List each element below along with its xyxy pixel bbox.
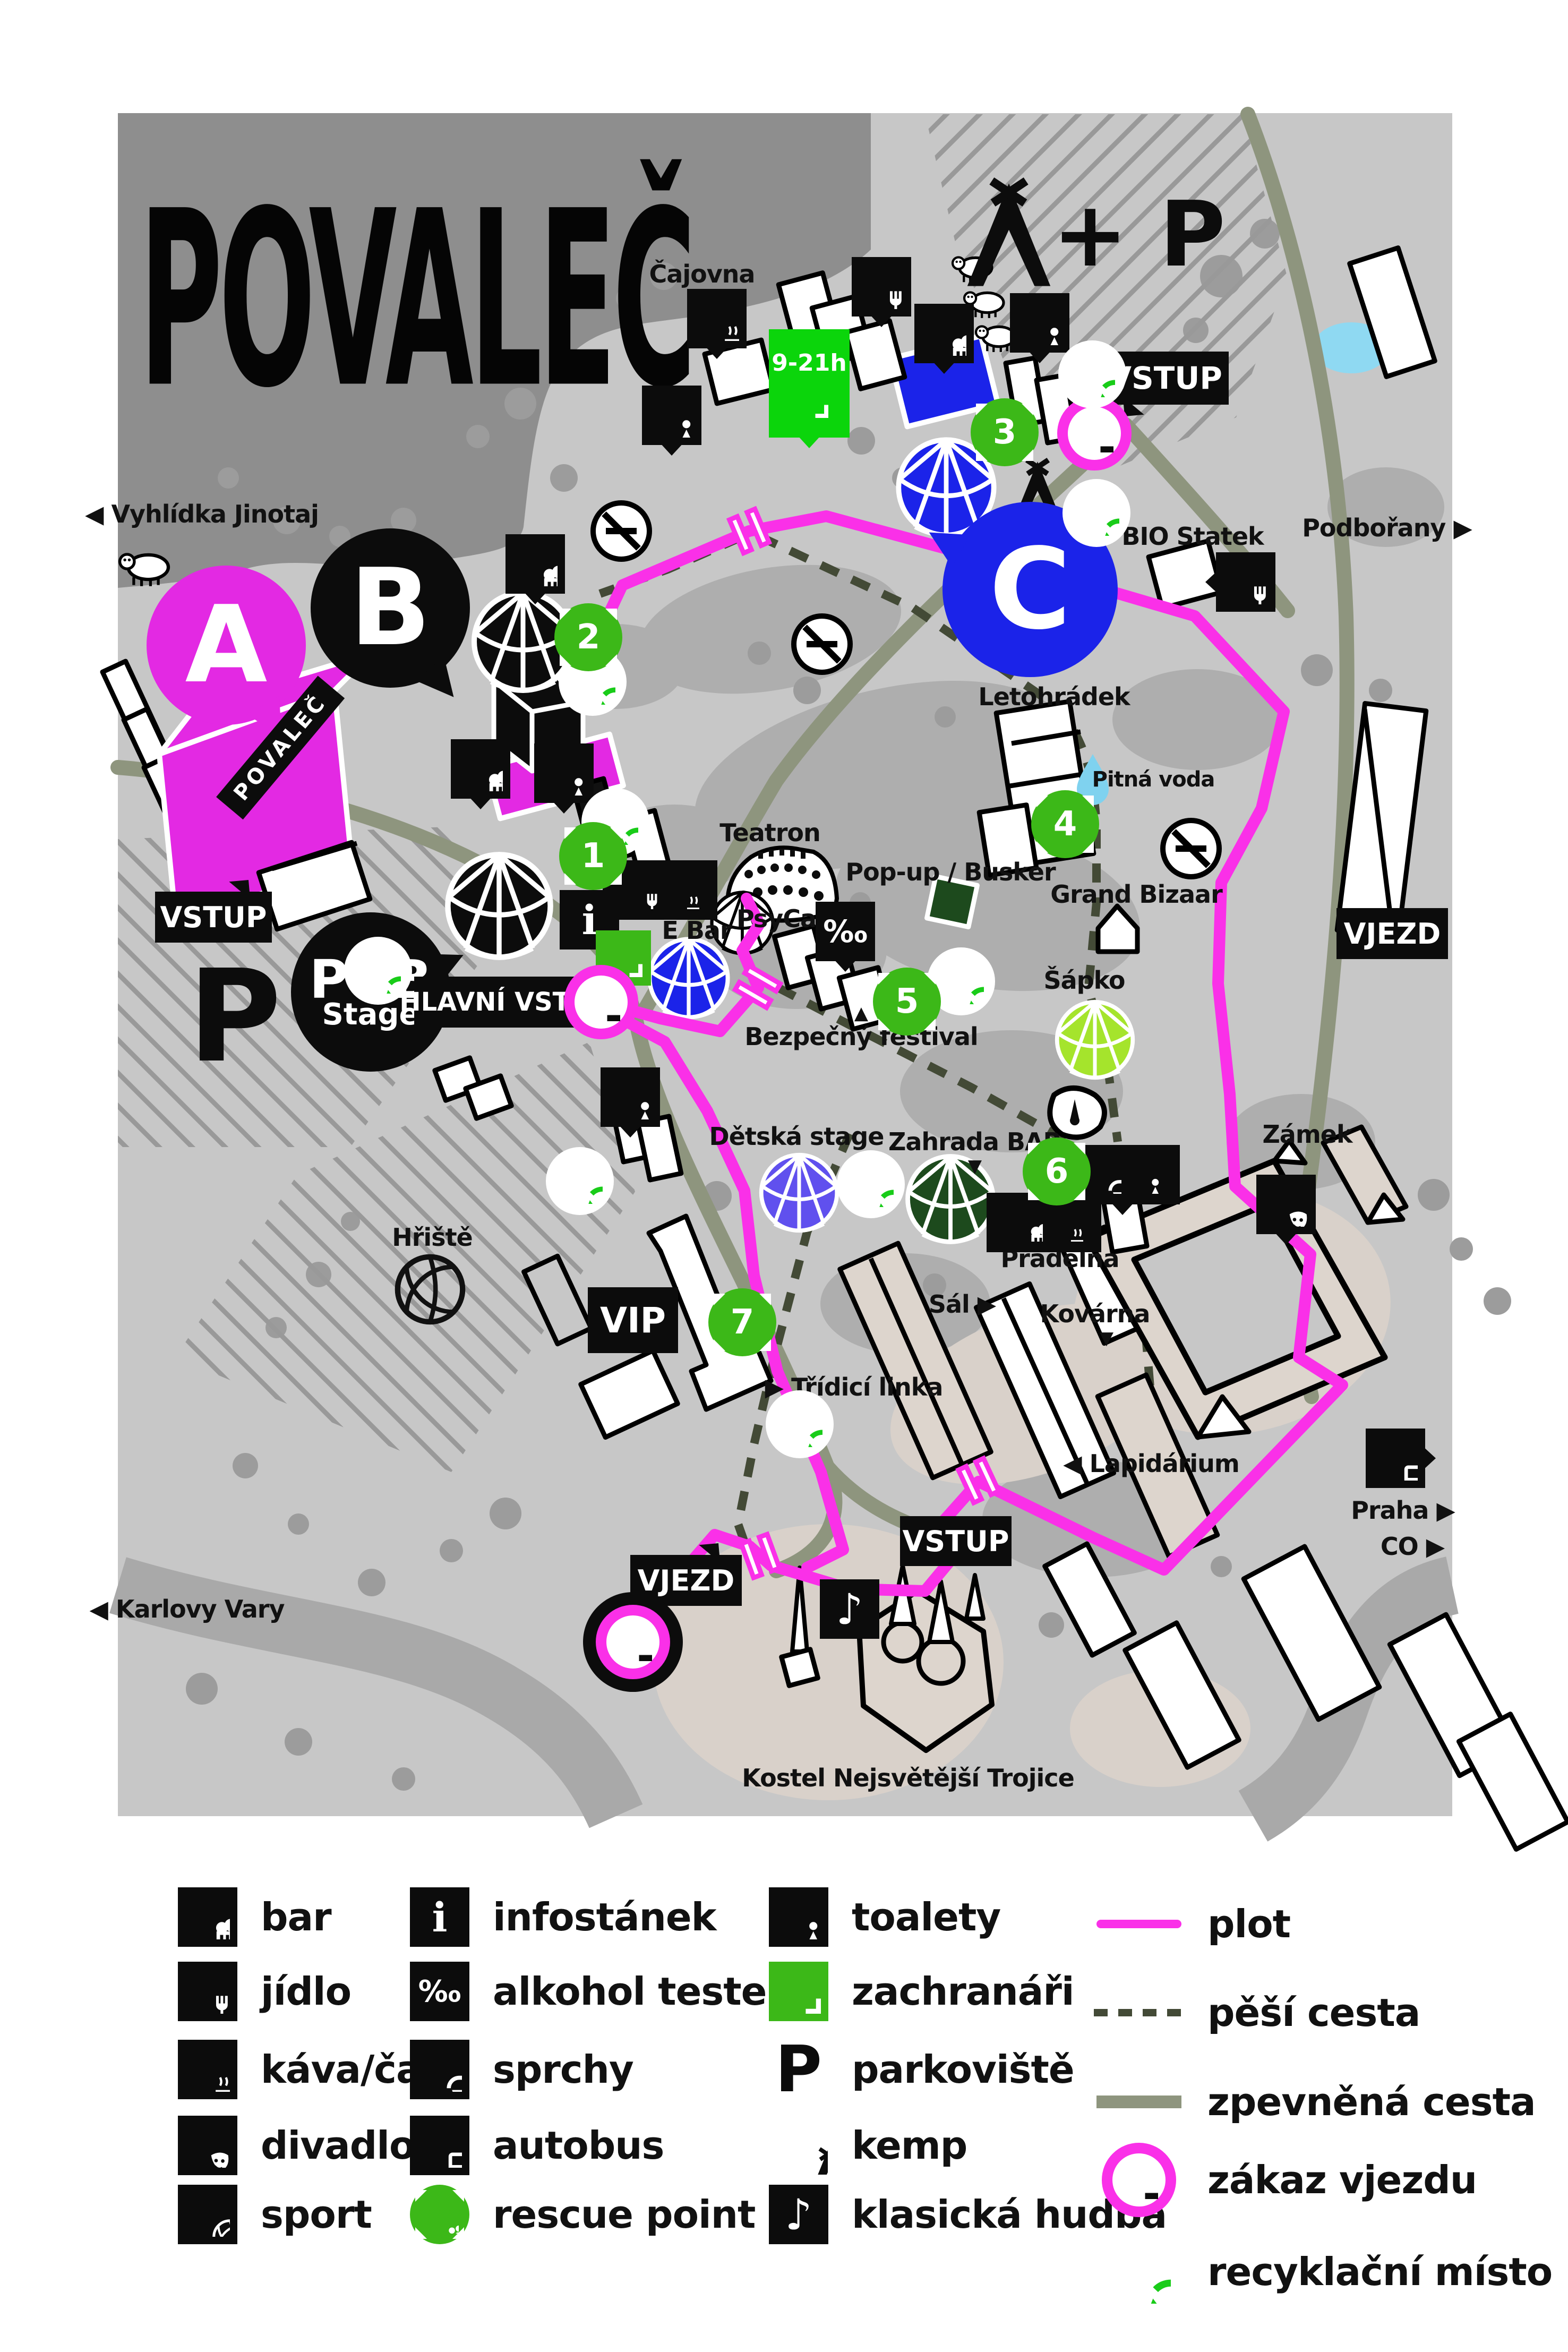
label-sapko: Šápko	[1043, 966, 1125, 995]
music-note-icon: ♪	[836, 1585, 863, 1634]
label-zamek: Zámek	[1262, 1120, 1352, 1149]
recycle-icon	[777, 1401, 822, 1447]
legend-item-sport: sport	[178, 2185, 372, 2244]
parking-icon: P	[769, 2040, 828, 2099]
coffee-icon	[695, 296, 739, 341]
coffee-icon	[1045, 1203, 1083, 1242]
dome-kids-stage	[761, 1155, 837, 1231]
label-letohradek: Letohrádek	[978, 682, 1129, 711]
stage-bubble-a: A	[147, 566, 306, 725]
coffee-icon	[178, 2040, 237, 2099]
bus-stop-marker	[1366, 1429, 1425, 1488]
theater-masks-icon	[1264, 1182, 1308, 1227]
label-lapidarium: ◀ Lapidárium	[1063, 1449, 1239, 1478]
recycle-icon	[557, 1158, 603, 1204]
pointer-down-icon: ▼	[1100, 1328, 1113, 1349]
coffee-icon	[661, 871, 699, 909]
beer-icon	[922, 311, 966, 356]
coffee-marker	[687, 289, 747, 348]
festival-map-page: POVALEČ ◀ Vyhlídka Jinotaj Čajovna Podbo…	[0, 0, 1568, 2352]
road-line-sample	[1094, 2072, 1184, 2132]
no-smoking-sign	[1160, 818, 1222, 879]
no-smoking-sign	[590, 500, 652, 562]
label-e-bar: E Bar	[662, 916, 731, 945]
legend-item-alkohol-tester: ‰ alkohol tester	[410, 1962, 785, 2021]
alcohol-tester-marker: ‰	[816, 902, 875, 961]
sign-vjezd-east: VJEZD	[1336, 908, 1448, 959]
recycle-point	[766, 1390, 834, 1458]
no-entry-icon	[1094, 2150, 1184, 2210]
camp-parking-label: + P	[1052, 182, 1226, 287]
label-pitna-voda: Pitná voda	[1092, 767, 1215, 792]
medic-hours-marker: 9-21h	[769, 329, 850, 438]
rescue-point-icon	[410, 2185, 469, 2244]
recycle-icon	[355, 948, 401, 994]
medic-cross-icon	[769, 1962, 828, 2021]
legend-item-zpevnena-cesta: zpevněná cesta	[1094, 2072, 1536, 2132]
label-popup-busker: Pop-up / Busker	[845, 858, 1055, 886]
label-hriste: Hřiště	[392, 1223, 473, 1252]
pointer-up-icon: ▲	[854, 1003, 868, 1024]
fence-line-sample	[1094, 1894, 1184, 1954]
classical-music-marker: ♪	[820, 1579, 879, 1639]
sign-vip: VIP	[588, 1287, 678, 1353]
truck-icon	[582, 983, 620, 1021]
rescue-point-7: 7	[708, 1288, 776, 1356]
sign-vjezd-south: VJEZD	[630, 1555, 742, 1606]
bus-icon	[1373, 1436, 1418, 1481]
legend-item-infostanek: i infostánek	[410, 1887, 716, 1947]
toilets-icon	[1017, 301, 1062, 345]
basketball-icon	[178, 2185, 237, 2244]
toilets-icon	[608, 1075, 653, 1119]
label-detska-stage: Dětská stage	[709, 1122, 884, 1151]
label-bio-statek: BIO Statek	[1121, 522, 1263, 551]
dome-sapko	[1057, 1002, 1133, 1078]
pointer-down-icon: ▼	[968, 1156, 982, 1177]
shower-icon	[410, 2040, 469, 2099]
toilets-marker	[534, 743, 594, 803]
legend-item-jidlo: jídlo	[178, 1962, 351, 2021]
rescue-point-3: 3	[971, 398, 1039, 466]
theater-masks-icon	[178, 2116, 237, 2175]
no-entry-sign	[596, 1605, 670, 1679]
label-kostel: Kostel Nejsvětější Trojice	[742, 1764, 1074, 1792]
food-icon	[1223, 560, 1268, 604]
recycle-point	[546, 1147, 614, 1215]
food-icon	[859, 264, 904, 309]
food-icon	[621, 871, 659, 909]
food-icon	[178, 1962, 237, 2021]
food-marker	[852, 257, 911, 317]
legend-item-recyklacni-misto: recyklační místo	[1094, 2242, 1552, 2302]
label-podborany: Podbořany ▶	[1302, 514, 1472, 542]
permille-icon: ‰	[823, 913, 868, 950]
label-praha: Praha ▶	[1351, 1496, 1455, 1525]
legend-item-zakaz-vjezdu: zákaz vjezdu	[1094, 2150, 1477, 2210]
legend-item-sprchy: sprchy	[410, 2040, 633, 2099]
recycle-icon	[1074, 490, 1119, 536]
toilets-icon	[542, 751, 586, 796]
toilets-icon	[769, 1887, 828, 1947]
rescue-point-1: 1	[559, 822, 627, 890]
label-grand-bizaar: Grand Bizaar	[1050, 880, 1222, 909]
stage-bubble-b: B	[311, 528, 470, 688]
medic-cross-icon	[790, 380, 828, 418]
dashed-line-sample	[1094, 1983, 1184, 2042]
toilets-icon	[1124, 1156, 1162, 1194]
recycle-icon	[1094, 2242, 1184, 2302]
theater-marker	[1256, 1175, 1316, 1234]
festival-title: POVALEČ	[139, 159, 692, 441]
rescue-point-4: 4	[1031, 790, 1099, 858]
legend-item-rescue-point: rescue point	[410, 2185, 755, 2244]
legend-item-pesi-cesta: pěší cesta	[1094, 1983, 1420, 2042]
legend-item-parkoviste: P parkoviště	[769, 2040, 1074, 2099]
toilets-icon	[649, 393, 694, 438]
parking-letter: P	[188, 942, 281, 1091]
rescue-point-2: 2	[554, 603, 622, 671]
recycle-icon	[1069, 352, 1115, 397]
toilets-marker	[601, 1067, 660, 1127]
legend-item-bar: bar	[178, 1887, 331, 1947]
food-marker	[1216, 552, 1275, 612]
permille-icon: ‰	[410, 1962, 469, 2021]
beer-marker	[505, 534, 565, 594]
label-karlovy-vary: ◀ Karlovy Vary	[90, 1595, 285, 1623]
legend-item-toalety: toalety	[769, 1887, 1000, 1947]
beer-icon	[1005, 1203, 1043, 1242]
hours-label: 9-21h	[772, 349, 846, 377]
recycle-point	[1058, 340, 1126, 408]
rescue-point-6: 6	[1023, 1137, 1091, 1205]
beer-marker	[451, 739, 510, 799]
label-co: CO ▶	[1381, 1532, 1444, 1561]
label-teatron: Teatron	[719, 818, 820, 847]
music-note-icon: ♪	[769, 2185, 828, 2244]
beer-icon	[178, 1887, 237, 1947]
beer-icon	[513, 542, 558, 586]
info-icon: i	[582, 896, 597, 944]
no-smoking-sign	[791, 613, 853, 675]
toilets-marker	[1010, 293, 1069, 353]
legend-item-kemp: kemp	[769, 2116, 967, 2175]
recycle-point	[837, 1150, 905, 1218]
sign-vstup-west: VSTUP	[155, 892, 272, 943]
beer-icon	[458, 747, 503, 791]
label-kovarna: Kovárna	[1040, 1299, 1150, 1328]
legend-item-plot: plot	[1094, 1894, 1290, 1954]
dome-pub-stage	[448, 854, 550, 957]
no-entry-sign	[564, 965, 638, 1039]
legend-item-kava-caj: káva/čaj	[178, 2040, 434, 2099]
recycle-point	[344, 937, 412, 1005]
label-bezpecny-festival: Bezpečný festival	[744, 1022, 978, 1051]
recycle-icon	[848, 1161, 894, 1207]
label-cajovna: Čajovna	[649, 260, 755, 288]
legend-item-zachranari: zachranáři	[769, 1962, 1074, 2021]
label-sal: Sál ▶	[929, 1290, 996, 1319]
legend-item-divadlo: divadlo	[178, 2116, 415, 2175]
label-vyhlidka-jinotaj: ◀ Vyhlídka Jinotaj	[85, 500, 319, 528]
truck-icon	[614, 1623, 652, 1661]
rescue-point-5: 5	[873, 968, 941, 1036]
recycle-point	[1063, 479, 1130, 547]
sign-vstup-south: VSTUP	[900, 1516, 1012, 1566]
dome-e-bar	[649, 939, 727, 1017]
toilets-marker	[642, 386, 701, 445]
truck-icon	[1075, 414, 1113, 452]
tent-icon	[769, 2116, 828, 2175]
beer-marker	[914, 304, 974, 363]
bus-icon	[410, 2116, 469, 2175]
info-icon: i	[410, 1887, 469, 1947]
recycle-icon	[938, 959, 984, 1004]
legend-item-autobus: autobus	[410, 2116, 664, 2175]
